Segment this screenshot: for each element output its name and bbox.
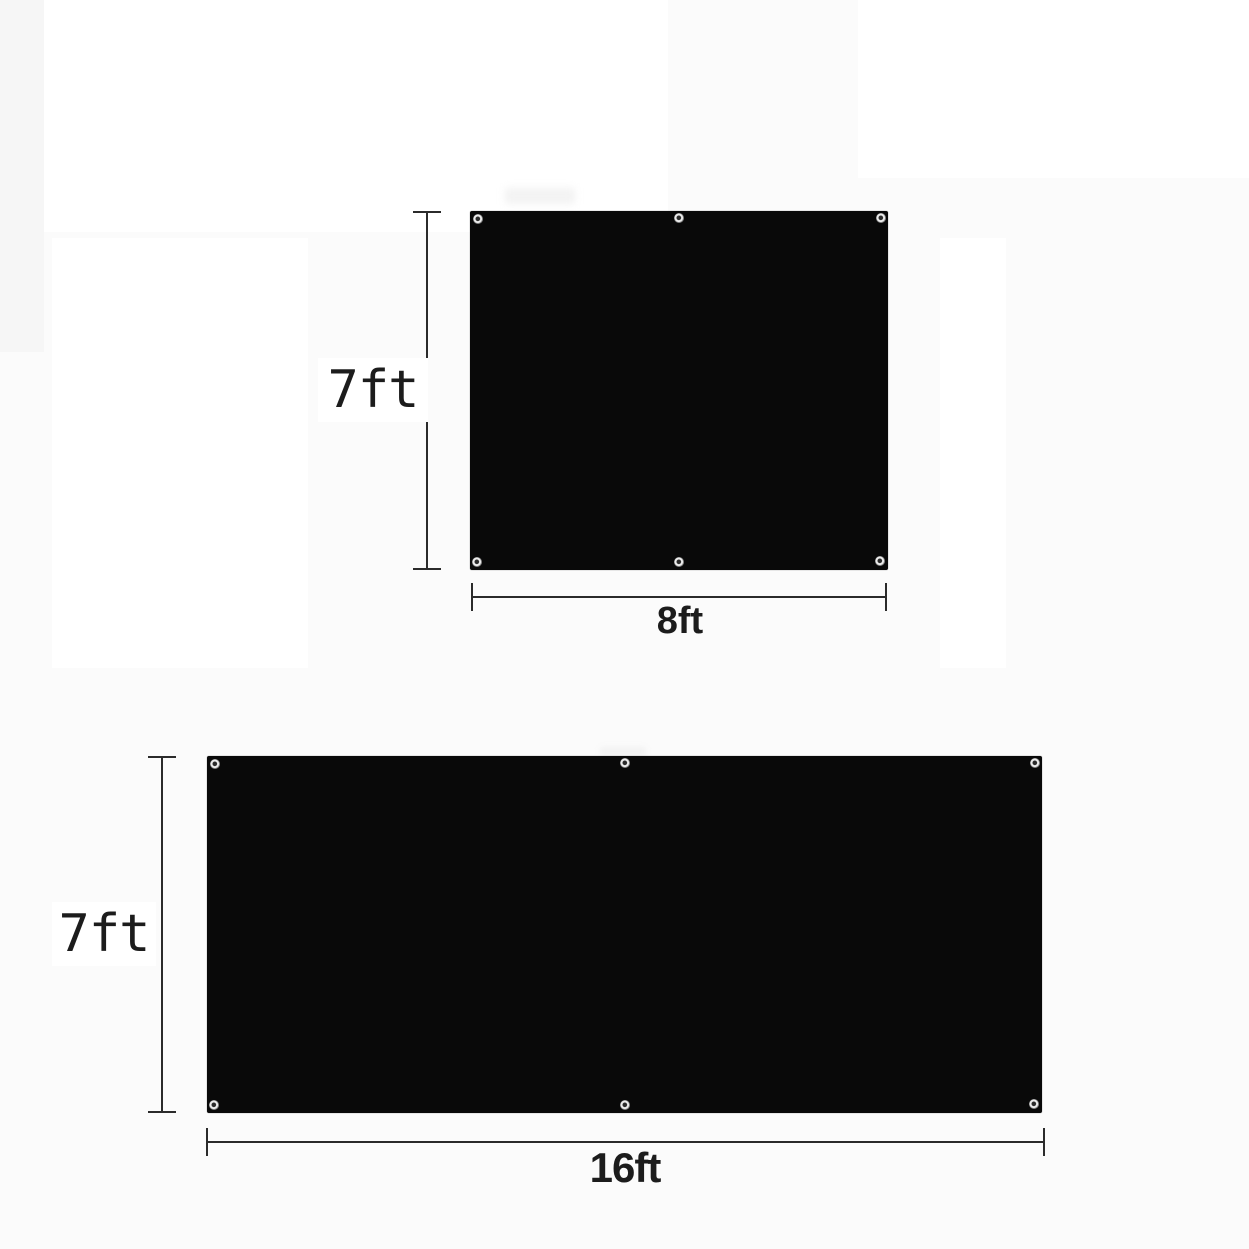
grommet-icon [1030, 758, 1040, 768]
grommet-icon [620, 1100, 630, 1110]
tarp-panel-7x8 [470, 211, 888, 570]
grommet-icon [473, 214, 483, 224]
background-patch [52, 238, 308, 668]
photo-artifact [600, 747, 646, 756]
width-label: 16ft [560, 1146, 690, 1190]
height-label: 7ft [52, 902, 156, 966]
grommet-icon [620, 758, 630, 768]
diagram-canvas: 7ft 8ft 7ft 16ft [0, 0, 1249, 1249]
grommet-icon [876, 213, 886, 223]
grommet-icon [674, 557, 684, 567]
grommet-icon [875, 556, 885, 566]
background-patch [940, 238, 1006, 668]
photo-artifact [505, 188, 575, 204]
grommet-icon [209, 1100, 219, 1110]
background-patch [858, 0, 1249, 178]
height-label: 7ft [318, 358, 428, 422]
grommet-icon [1029, 1099, 1039, 1109]
tarp-panel-7x16 [207, 756, 1042, 1113]
background-patch [0, 0, 44, 352]
width-label: 8ft [620, 600, 740, 642]
grommet-icon [210, 759, 220, 769]
width-dimension-line [471, 596, 887, 598]
grommet-icon [674, 213, 684, 223]
width-dimension-line [206, 1141, 1045, 1143]
height-dimension-line [161, 756, 163, 1113]
grommet-icon [472, 557, 482, 567]
